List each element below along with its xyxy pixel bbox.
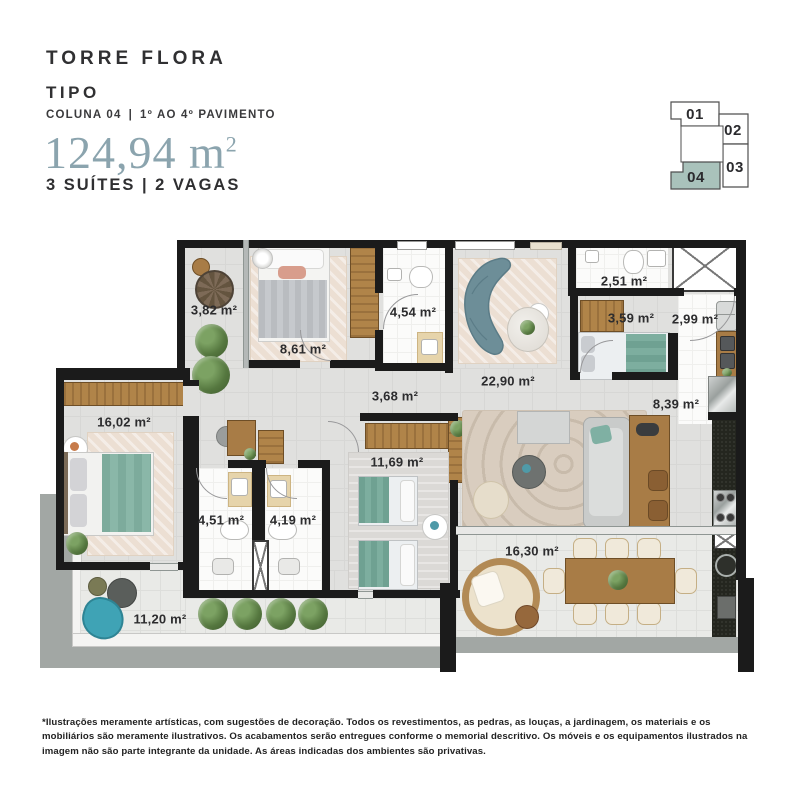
room-label-hall: 3,68 m² <box>372 389 418 404</box>
master-door-gap <box>183 386 199 416</box>
wall-bath-suite1-bottom <box>375 363 453 371</box>
room-label-terrace-gourmet: 16,30 m² <box>505 544 559 559</box>
wall-bath2-bottom <box>568 288 684 296</box>
room-label-entry: 2,99 m² <box>672 312 718 327</box>
suite1-ceiling-fan <box>252 248 273 269</box>
wall-suite1-bath-a <box>375 240 383 293</box>
keyplan-core-shape <box>681 126 723 162</box>
kitchen-sink-counter <box>708 376 738 414</box>
office-desk <box>517 411 570 444</box>
bath4-shower-fixture <box>278 558 300 575</box>
terrace-shrub-2 <box>232 598 262 630</box>
suite2-bed-blanket <box>626 334 666 376</box>
desk-chair-1 <box>648 470 668 491</box>
sliding-door-master-terrace <box>150 563 178 571</box>
ventilation-shaft <box>252 540 269 594</box>
window-top-living <box>455 241 515 250</box>
terrace-left-railing-bottom <box>72 633 447 647</box>
bath3-sink <box>231 478 248 496</box>
master-wardrobe <box>63 382 192 406</box>
master-bed-pillow-1 <box>70 458 87 491</box>
suite1-accent-pillow <box>278 266 306 279</box>
stove-burner-2 <box>726 493 735 502</box>
room-label-master: 16,02 m² <box>97 415 151 430</box>
twin-bed-2-pillow <box>400 544 415 586</box>
wall-terrace-divider <box>440 583 456 672</box>
sliding-door-bedroom-terrace <box>358 591 373 599</box>
room-label-bath2: 2,51 m² <box>601 274 647 289</box>
wall-suite2-right <box>668 333 678 380</box>
wall-suite1-bottom-a <box>247 360 300 368</box>
bath-suite1-toilet <box>409 266 433 288</box>
room-label-bath3: 4,51 m² <box>198 513 244 528</box>
room-label-suite1: 8,61 m² <box>280 342 326 357</box>
room-label-kitchen: 8,39 m² <box>653 397 699 412</box>
terrace-olive-pot <box>88 577 107 596</box>
column-label: COLUNA 04 <box>46 109 122 121</box>
bedroom-nightstand-decor <box>430 521 439 530</box>
dining-table-plant <box>608 570 628 590</box>
features-line: 3 SUÍTES | 2 VAGAS <box>46 176 240 195</box>
bath-suite1-sink <box>421 339 438 355</box>
bath2-toilet <box>623 250 644 274</box>
twin-bed-1-blanket <box>359 477 389 523</box>
stove-burner-4 <box>726 513 735 522</box>
wall-bedroom-top <box>360 413 458 421</box>
bath2-shower-drain <box>585 250 599 263</box>
master-bed-pillow-2 <box>70 494 87 527</box>
legal-disclaimer: *Ilustrações meramente artísticas, com s… <box>42 716 760 759</box>
wall-master-top <box>56 368 190 380</box>
wall-master-bottom-a <box>56 562 150 570</box>
column-floors-line: COLUNA 04|1º AO 4º PAVIMENTO <box>46 109 276 121</box>
keyplan-unit-02-label: 02 <box>724 122 742 139</box>
wall-bath4-right <box>322 460 330 598</box>
dining-chair-bottom-2 <box>605 602 629 625</box>
wall-suite2-bottom-a <box>570 372 580 380</box>
terrace-left-slab-bottom <box>40 645 445 668</box>
wall-baths-top-a <box>228 460 266 468</box>
room-label-living: 22,90 m² <box>481 374 535 389</box>
varanda-plant-1 <box>195 324 228 358</box>
kitchen-appliance-1 <box>720 336 735 351</box>
stove-burner-1 <box>716 493 725 502</box>
hall-cabinet <box>258 430 284 464</box>
living-pouf-chair <box>473 481 509 519</box>
wall-bedroom-right-lower <box>450 480 458 595</box>
floorplan-marketing-page: TORRE FLORA TIPO COLUNA 04|1º AO 4º PAVI… <box>0 0 800 800</box>
living-table-plant <box>520 320 535 335</box>
dining-chair-bottom-1 <box>573 602 597 625</box>
divider: | <box>129 109 133 121</box>
bath3-shower-fixture <box>212 558 234 575</box>
kitchen-counter-divider <box>708 412 736 420</box>
room-label-varanda: 3,82 m² <box>191 303 237 318</box>
floor-plan: 3,82 m² 8,61 m² 4,54 m² 3,68 m² 22,90 m²… <box>40 228 762 680</box>
dining-chair-right <box>675 568 697 594</box>
project-title: TORRE FLORA <box>46 48 227 70</box>
room-label-suite2: 3,59 m² <box>608 311 654 326</box>
wall-baths-bottom <box>190 590 335 598</box>
wall-bedroom-bottom-a <box>335 590 358 598</box>
wall-entry-top-stub <box>734 288 746 296</box>
terrace-shrub-4 <box>298 598 328 630</box>
floors-label: 1º AO 4º PAVIMENTO <box>140 109 276 121</box>
wall-varanda-left <box>177 240 185 368</box>
building-keyplan: 01 02 03 04 <box>648 92 772 204</box>
wall-baths-divider <box>252 468 265 540</box>
terrace-shrub-3 <box>266 598 296 630</box>
room-label-bath-suite1: 4,54 m² <box>390 305 436 320</box>
window-top-bath <box>397 241 427 250</box>
kitchen-appliance-2 <box>720 353 735 369</box>
stove-burner-3 <box>716 513 725 522</box>
desk-laptop <box>636 423 659 436</box>
desk-chair-2 <box>648 500 668 521</box>
area-exponent: 2 <box>226 132 238 157</box>
sliding-door-gourmet-terrace <box>456 526 736 535</box>
bath2-sink <box>647 250 666 267</box>
kitchen-lower-panel <box>717 596 736 619</box>
terrace-shrub-1 <box>198 598 228 630</box>
wall-left <box>56 368 64 570</box>
wall-right-stub <box>738 578 754 672</box>
bath-suite1-shower-fixture <box>387 268 402 281</box>
twin-bed-1-pillow <box>400 480 415 522</box>
master-nightstand-decor <box>70 442 79 451</box>
dining-chair-left <box>543 568 565 594</box>
room-label-bedroom: 11,69 m² <box>371 455 424 470</box>
keyplan-unit-03-label: 03 <box>726 159 744 176</box>
bedroom-wardrobe <box>365 423 457 449</box>
wall-suite2-left <box>570 296 578 380</box>
keyplan-unit-04-label: 04 <box>687 169 705 186</box>
kitchen-round-sink <box>715 554 738 577</box>
keyplan-unit-01-label: 01 <box>686 106 704 123</box>
room-label-terrace-left: 11,20 m² <box>134 612 187 627</box>
glass-varanda-separator <box>243 240 249 368</box>
dining-chair-bottom-3 <box>637 602 661 625</box>
office-table-decor <box>522 464 531 473</box>
plan-type: TIPO <box>46 83 100 103</box>
twin-bed-2-blanket <box>359 541 389 587</box>
terrace-right-slab <box>456 637 740 653</box>
master-bed-blanket <box>102 454 151 532</box>
window-top-living-2 <box>530 242 562 250</box>
master-plant <box>66 532 88 555</box>
room-label-bath4: 4,19 m² <box>270 513 316 528</box>
terrace-stool <box>515 605 539 629</box>
wall-bath-living <box>445 240 453 373</box>
hall-plant <box>244 448 256 460</box>
total-area: 124,94 m2 <box>44 126 238 179</box>
